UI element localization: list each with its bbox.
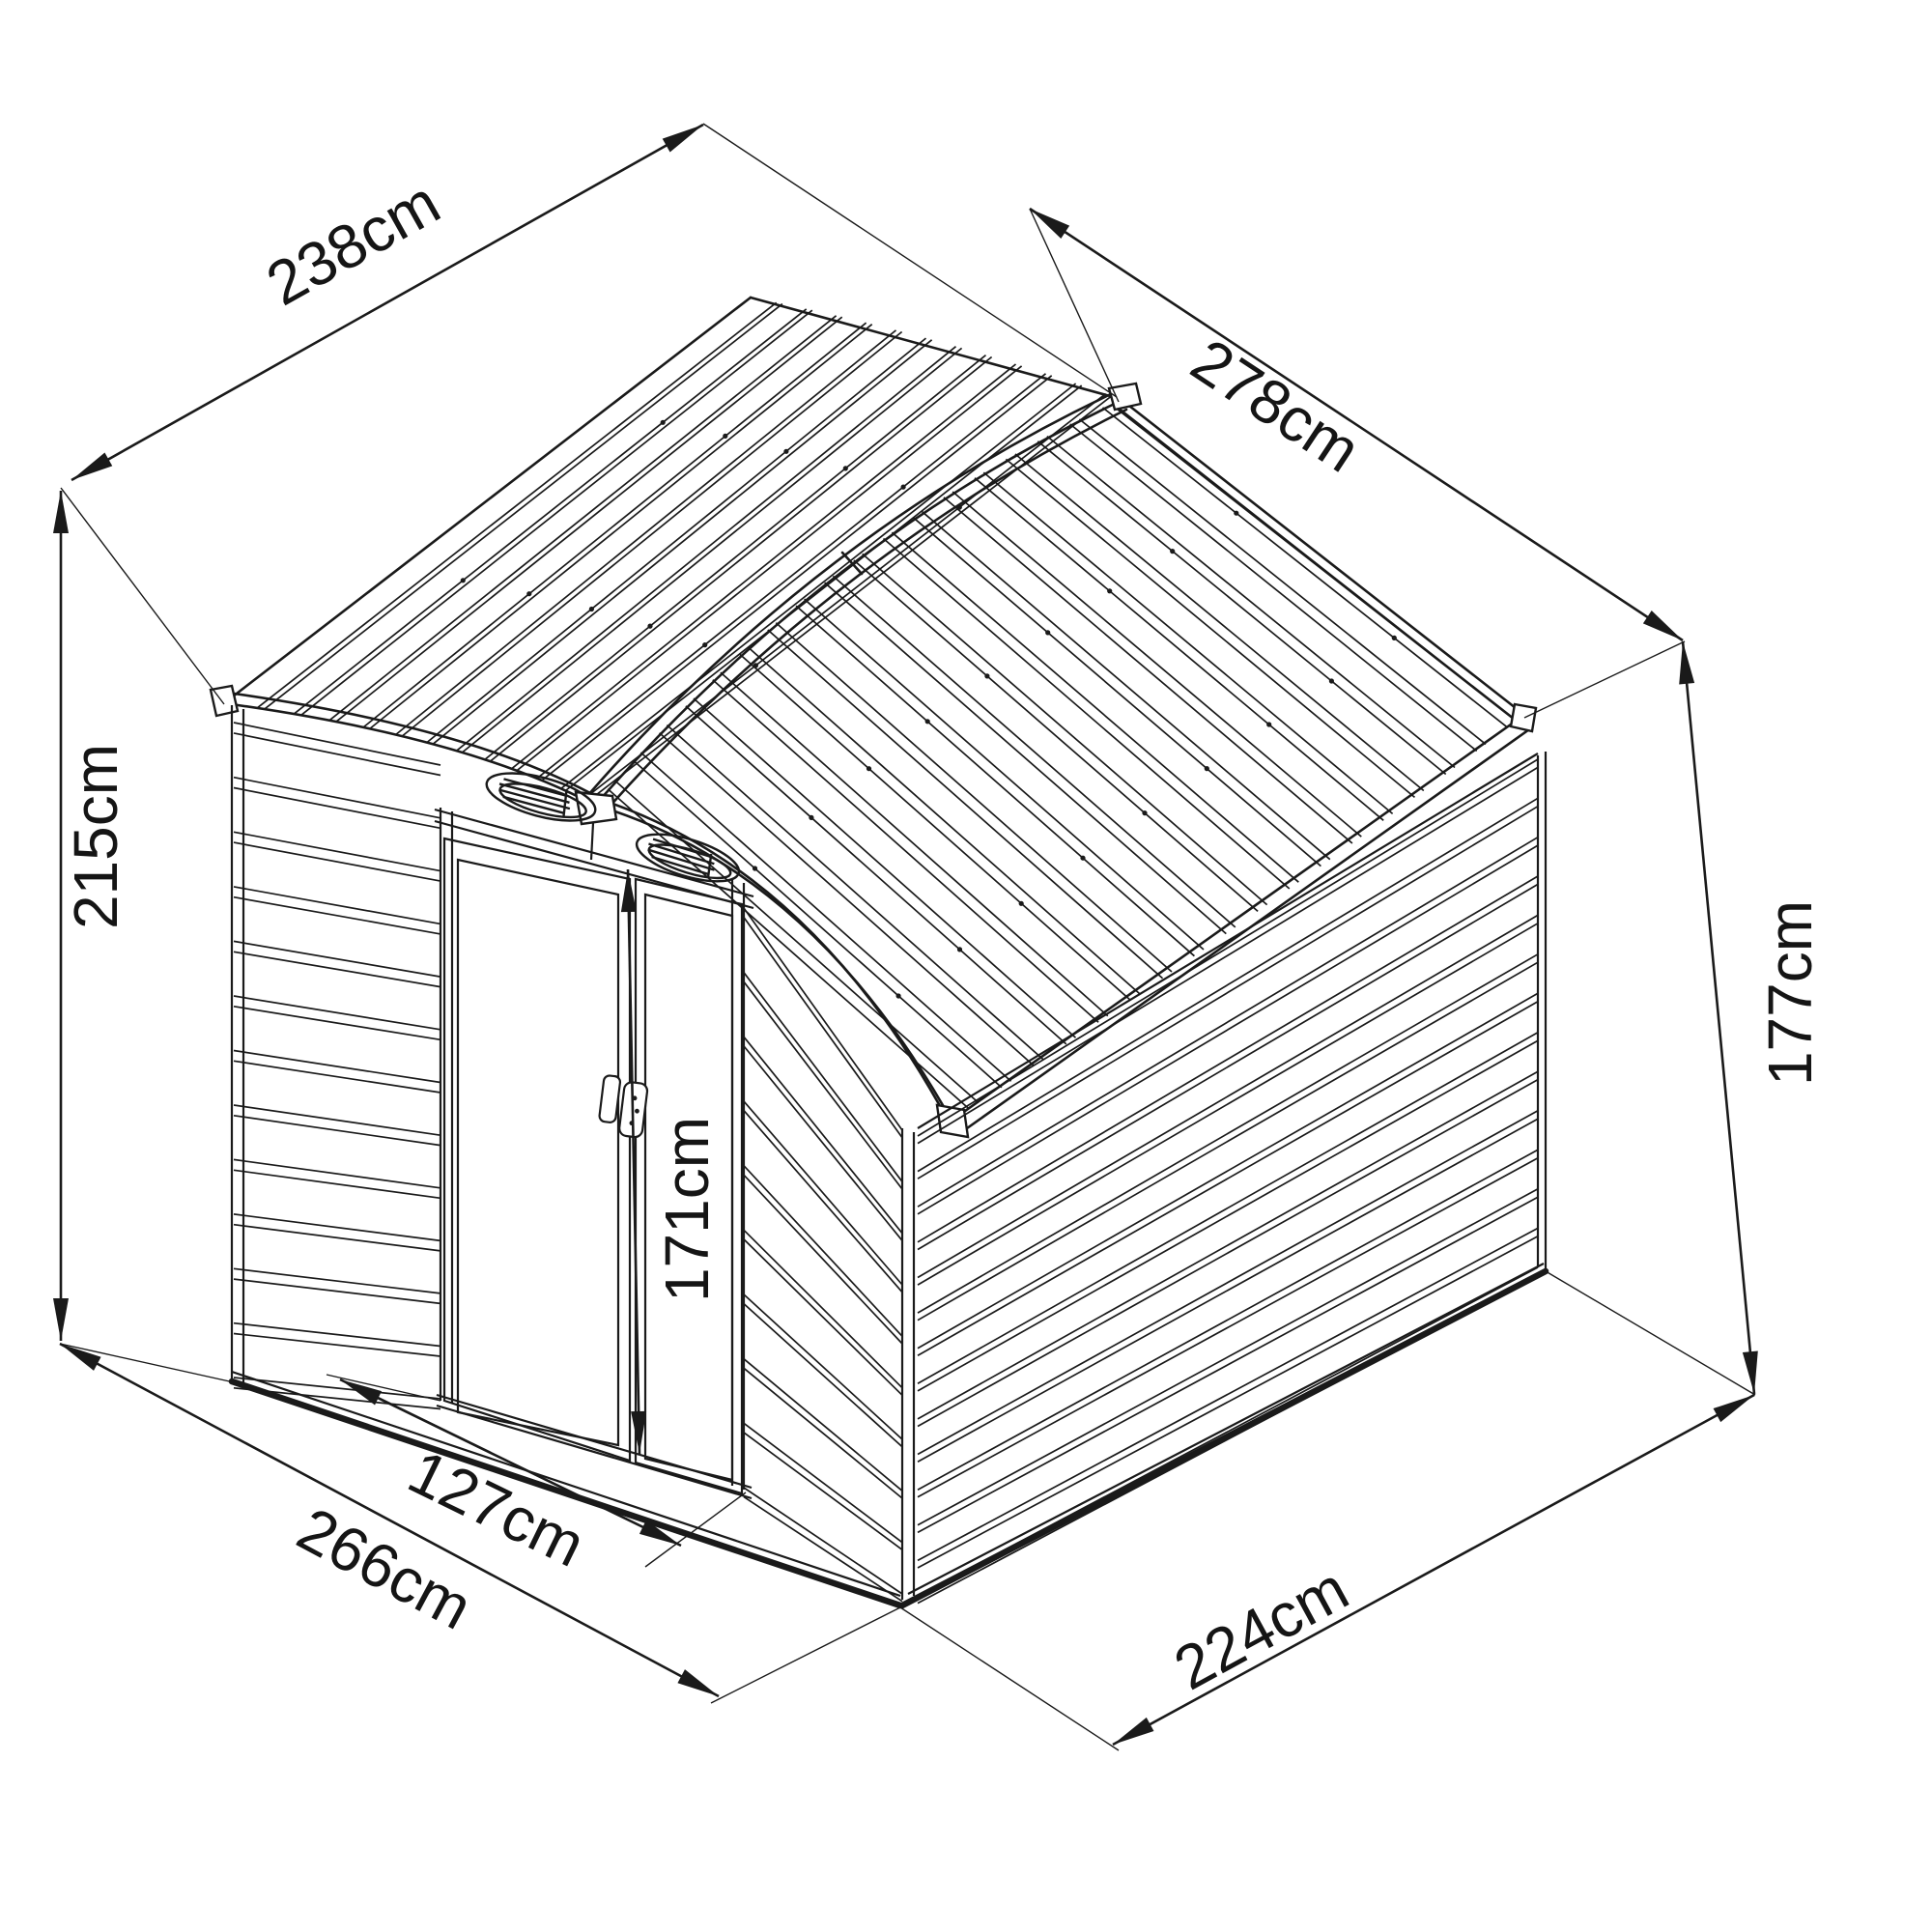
dim-line-roof-width [71, 125, 703, 480]
door-panel-left-inner [458, 860, 618, 1445]
dim-label-roof-length: 278cm [1179, 326, 1373, 486]
roof-front-rake-right-fascia [586, 795, 944, 1113]
drawing-canvas: 215cm 238cm 278cm 177cm 171cm 127cm 266c… [0, 0, 1932, 1932]
door-handle [597, 1075, 648, 1138]
base-rail-highlights [232, 1264, 1544, 1596]
right-rear-eave-cap [1511, 704, 1536, 731]
shed-dimension-diagram: 215cm 238cm 278cm 177cm 171cm 127cm 266c… [0, 0, 1932, 1932]
gable-vent-right [632, 825, 744, 892]
dim-line-base-width [60, 1344, 719, 1696]
gable-center-seam [591, 823, 593, 860]
dim-label-door-height: 171cm [652, 1117, 722, 1302]
ridge-cap-bottom [601, 410, 1126, 816]
door-panel-left [444, 838, 630, 1461]
roof-left-eave-edge [224, 298, 751, 703]
dim-line-wall-height [1683, 641, 1754, 1394]
ridge-rear-cap [1109, 384, 1141, 410]
dim-label-roof-width: 238cm [255, 167, 451, 319]
right-wall-top-edge [918, 753, 1538, 1128]
front-wall-left-siding [234, 723, 440, 1409]
dim-label-total-height: 215cm [61, 744, 130, 929]
dim-label-base-depth: 224cm [1163, 1553, 1359, 1703]
left-eave-cap [211, 686, 238, 716]
roof-rear-rake-left [751, 298, 1121, 399]
dim-label-wall-height: 177cm [1755, 900, 1825, 1086]
